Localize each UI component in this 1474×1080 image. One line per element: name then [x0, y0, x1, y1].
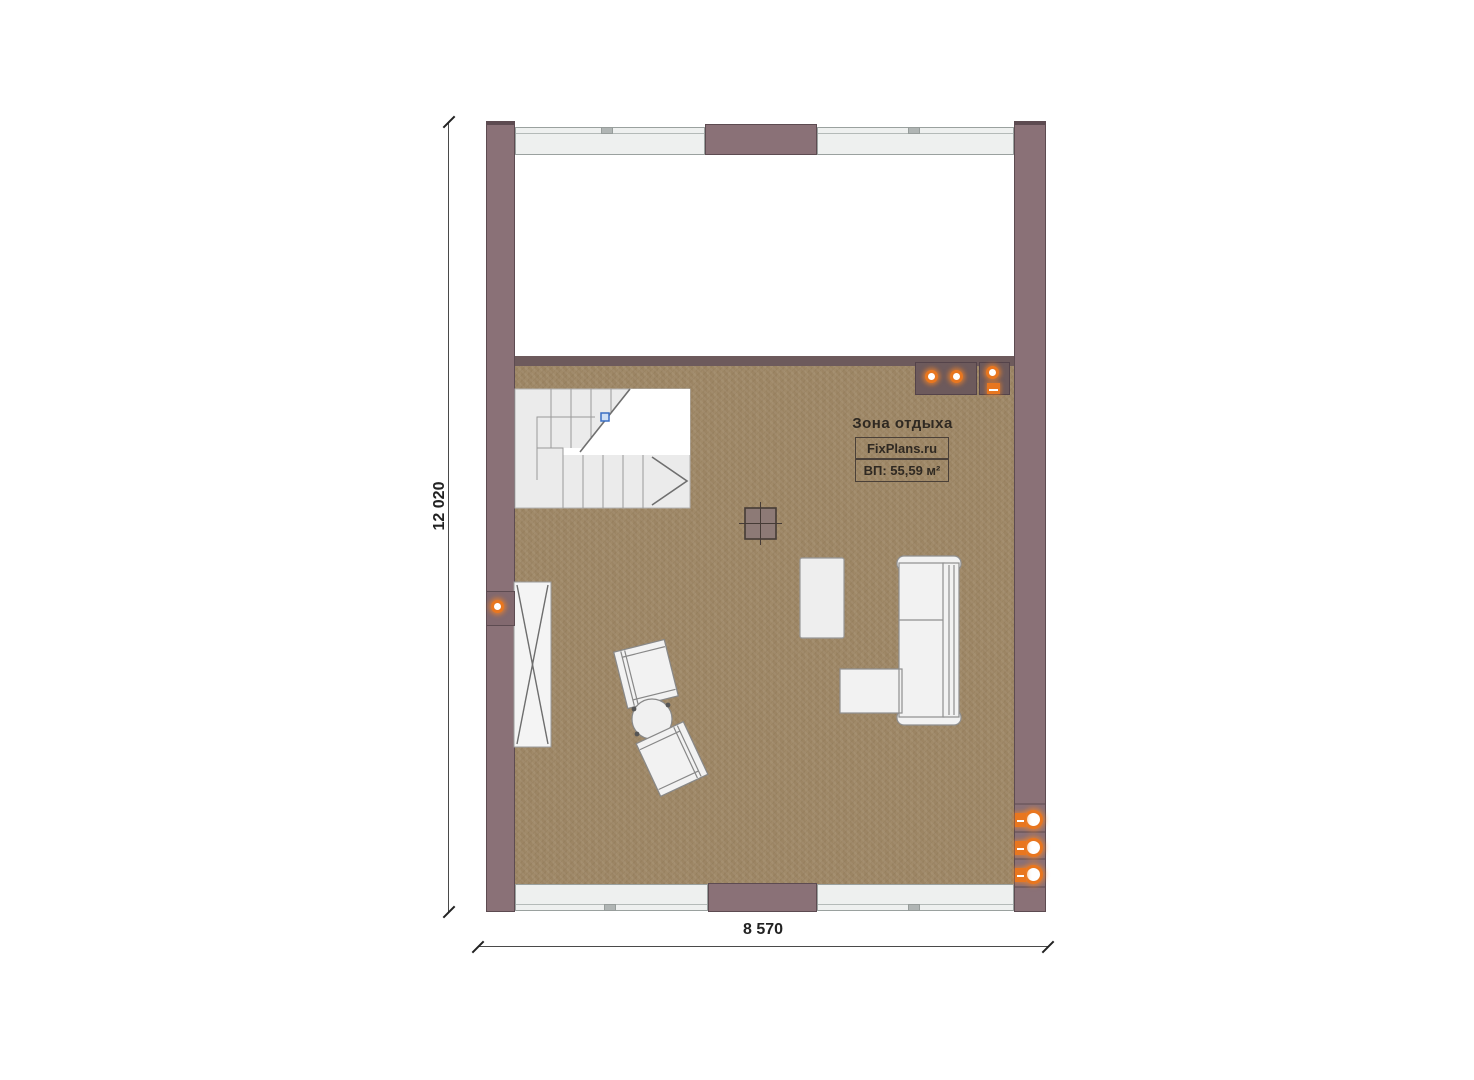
spotlight-icon	[950, 370, 963, 383]
horizontal-dimension-line	[478, 946, 1048, 947]
socket-square	[1015, 868, 1026, 882]
switch-glyph	[989, 389, 998, 391]
wall-light-icon	[491, 600, 504, 613]
socket-icon	[1015, 838, 1043, 857]
sofa-seat-horizontal	[840, 669, 902, 713]
corner-sofa	[840, 556, 961, 725]
armchair-1	[614, 640, 678, 709]
chimney-flue	[739, 502, 782, 545]
spotlight-icon	[986, 366, 999, 379]
floorplan-canvas: Зона отдыха FixPlans.ru ВП: 55,59 м² 12 …	[0, 0, 1474, 1080]
furniture-linework-layer	[0, 0, 1474, 1080]
sofa-seat-vertical	[899, 563, 944, 717]
stair-break-marker-icon	[601, 413, 609, 421]
socket-square	[1015, 841, 1026, 855]
ceiling-fixture-panel	[979, 362, 1010, 395]
socket-icon	[1015, 865, 1043, 884]
brand-label-box: FixPlans.ru	[855, 437, 949, 459]
socket-circle	[1024, 838, 1043, 857]
socket-circle	[1024, 865, 1043, 884]
horizontal-dimension-label: 8 570	[713, 921, 813, 939]
area-label: ВП: 55,59 м²	[864, 463, 941, 478]
switch-icon	[987, 383, 1000, 394]
sofa-backrest	[943, 563, 959, 717]
staircase	[515, 389, 690, 508]
area-label-box: ВП: 55,59 м²	[855, 459, 949, 482]
socket-square	[1015, 813, 1026, 827]
socket-icon	[1015, 810, 1043, 829]
ceiling-spotlight-panel	[915, 362, 977, 395]
spotlight-icon	[925, 370, 938, 383]
vertical-dimension-label: 12 020	[431, 476, 449, 536]
coffee-table	[800, 558, 844, 638]
socket-circle	[1024, 810, 1043, 829]
brand-label: FixPlans.ru	[867, 441, 937, 456]
left-wall-light-panel	[486, 591, 515, 626]
wardrobe	[514, 582, 551, 747]
room-title: Зона отдыха	[845, 415, 960, 432]
